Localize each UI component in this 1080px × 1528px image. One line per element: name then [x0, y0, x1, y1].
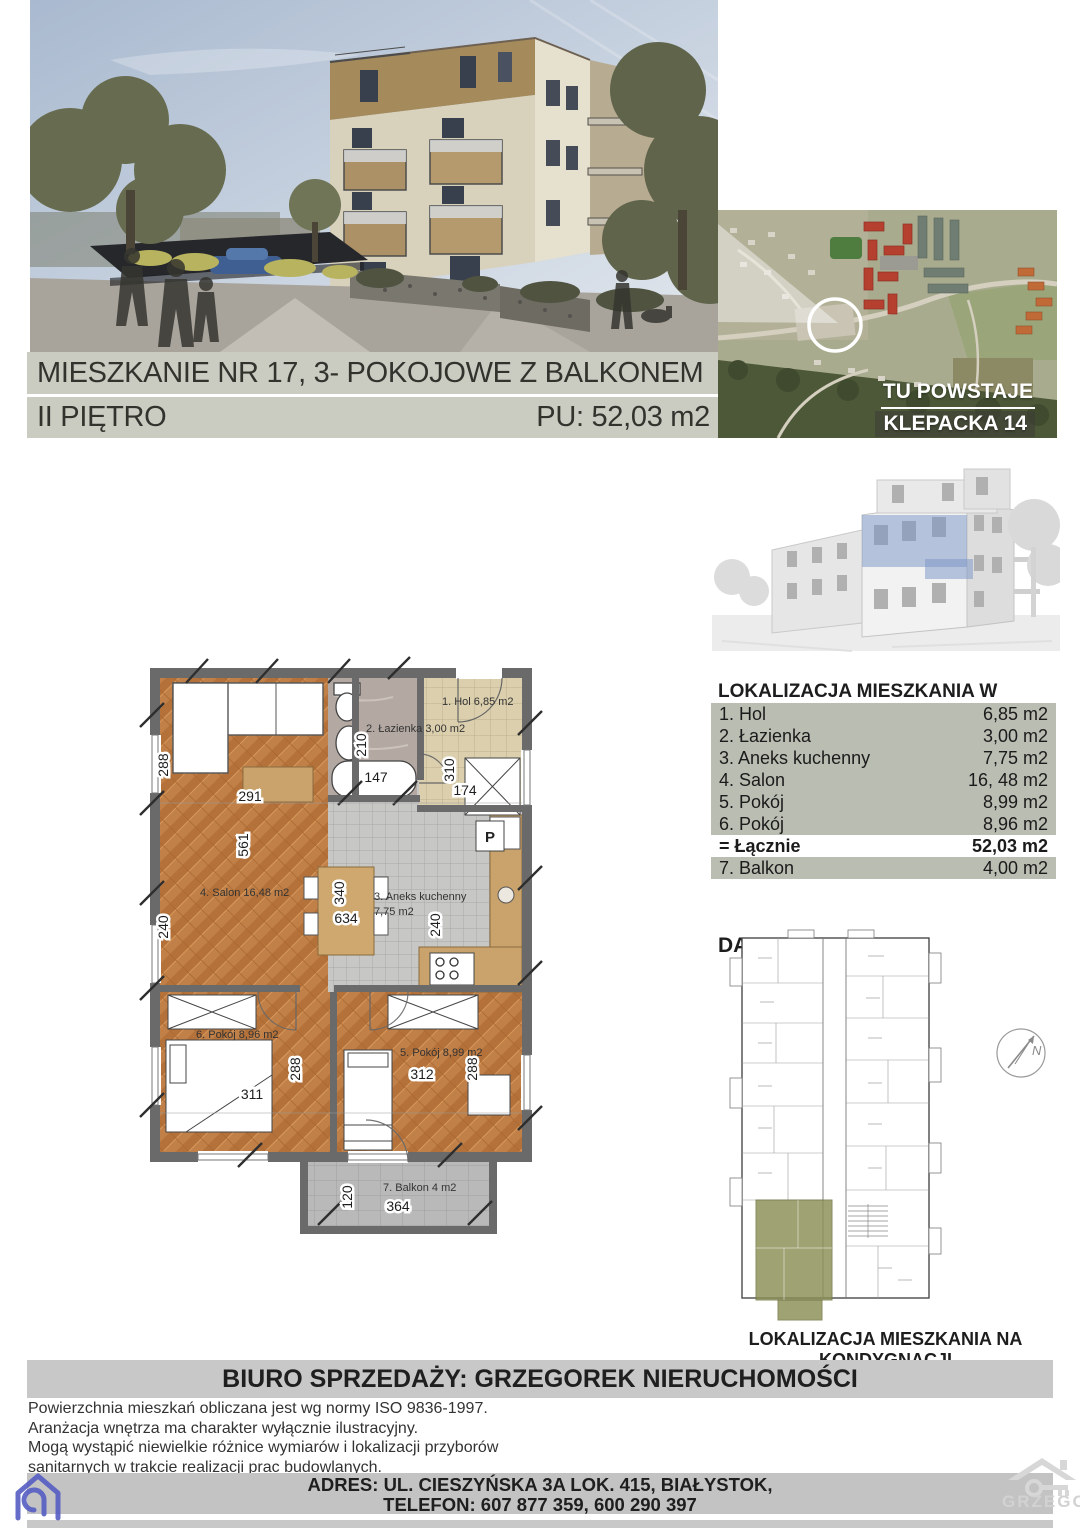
room-label-lazienka: 2. Łazienka 3,00 m2: [366, 723, 465, 735]
svg-text:174: 174: [453, 782, 477, 798]
compass-icon: N: [990, 1022, 1052, 1084]
svg-text:340: 340: [331, 881, 347, 905]
map-tagline-bottom: KLEPACKA 14: [875, 411, 1035, 437]
svg-text:312: 312: [410, 1066, 434, 1082]
svg-text:634: 634: [334, 910, 358, 926]
brand-panel: MOJE PIERWSZE MIESZKANIE W BIAŁYMSTOKU: [718, 0, 1080, 210]
svg-text:288: 288: [155, 753, 171, 777]
floor-label: II PIĘTRO: [37, 401, 166, 433]
table-row: 6. Pokój8,96 m2: [711, 813, 1056, 835]
bottom-strip: [27, 1520, 1053, 1528]
rooms-table: 1. Hol6,85 m2 2. Łazienka3,00 m2 3. Anek…: [711, 703, 1056, 879]
agency-watermark: GRZEGO: [1002, 1452, 1080, 1514]
table-row: 2. Łazienka3,00 m2: [711, 725, 1056, 747]
svg-text:311: 311: [241, 1086, 264, 1102]
room-label-hol: 1. Hol 6,85 m2: [442, 696, 514, 708]
table-row: 4. Salon16, 48 m2: [711, 769, 1056, 791]
svg-text:291: 291: [238, 788, 262, 804]
agency-watermark-text: GRZEGO: [1002, 1492, 1080, 1512]
table-row-total: = Łącznie52,03 m2: [711, 835, 1056, 857]
svg-text:147: 147: [364, 769, 388, 785]
room-label-pokoj5: 5. Pokój 8,99 m2: [400, 1047, 483, 1059]
map-tagline-top: TU POWSTAJE: [881, 380, 1035, 409]
room-label-balkon: 7. Balkon 4 m2: [383, 1182, 456, 1194]
storey-floor-plan: [728, 928, 963, 1330]
sales-office-header: BIURO SPRZEDAŻY: GRZEGOREK NIERUCHOMOŚCI: [27, 1360, 1053, 1398]
room-label-salon: 4. Salon 16,48 m2: [200, 887, 289, 899]
aerial-location-map: TU POWSTAJE KLEPACKA 14: [718, 210, 1057, 438]
svg-text:364: 364: [386, 1198, 410, 1214]
disclaimer-line: Aranżacja wnętrza ma charakter wyłącznie…: [28, 1419, 498, 1439]
disclaimer-line: Mogą wystąpić niewielkie różnice wymiaró…: [28, 1438, 498, 1458]
apartment-title: MIESZKANIE NR 17, 3- POKOJOWE Z BALKONEM: [37, 357, 703, 389]
svg-text:240: 240: [427, 913, 443, 937]
table-row: 3. Aneks kuchenny7,75 m2: [711, 747, 1056, 769]
washer-label: P: [485, 829, 495, 846]
svg-text:120: 120: [339, 1185, 355, 1209]
address-line: ADRES: UL. CIESZYŃSKA 3A LOK. 415, BIAŁY…: [27, 1475, 1053, 1495]
disclaimer-block: Powierzchnia mieszkań obliczana jest wg …: [28, 1399, 498, 1477]
usable-area: PU: 52,03 m2: [536, 397, 710, 438]
svg-text:288: 288: [287, 1057, 303, 1081]
offer-sheet: MOJE PIERWSZE MIESZKANIE W BIAŁYMSTOKU: [0, 0, 1080, 1528]
compass-n-label: N: [1032, 1043, 1042, 1058]
phone-line: TELEFON: 607 877 359, 600 290 397: [27, 1495, 1053, 1515]
room-label-aneks-2: 7,75 m2: [374, 906, 414, 918]
apartment-floor-plan: P: [138, 655, 578, 1305]
table-row: 5. Pokój8,99 m2: [711, 791, 1056, 813]
room-label-aneks-1: 3. Aneks kuchenny: [374, 891, 467, 903]
apartment-subtitle-bar: PU: 52,03 m2 II PIĘTRO: [27, 397, 718, 438]
table-row: 1. Hol6,85 m2: [711, 703, 1056, 725]
table-row-balcony: 7. Balkon4,00 m2: [711, 857, 1056, 879]
svg-text:210: 210: [353, 733, 369, 757]
svg-text:310: 310: [441, 758, 457, 782]
highlighted-unit-overlay: [756, 1200, 832, 1320]
svg-text:288: 288: [464, 1057, 480, 1081]
room-label-pokoj6: 6. Pokój 8,96 m2: [196, 1029, 279, 1041]
svg-text:240: 240: [155, 915, 171, 939]
footer-contact-bar: ADRES: UL. CIESZYŃSKA 3A LOK. 415, BIAŁY…: [27, 1473, 1053, 1514]
building-location-sketch: [712, 455, 1060, 667]
disclaimer-line: Powierzchnia mieszkań obliczana jest wg …: [28, 1399, 498, 1419]
listing-portal-logo-icon: [10, 1468, 66, 1524]
svg-text:561: 561: [235, 833, 251, 857]
building-rendering-photo: [30, 0, 718, 352]
apartment-title-bar: MIESZKANIE NR 17, 3- POKOJOWE Z BALKONEM: [27, 352, 718, 394]
